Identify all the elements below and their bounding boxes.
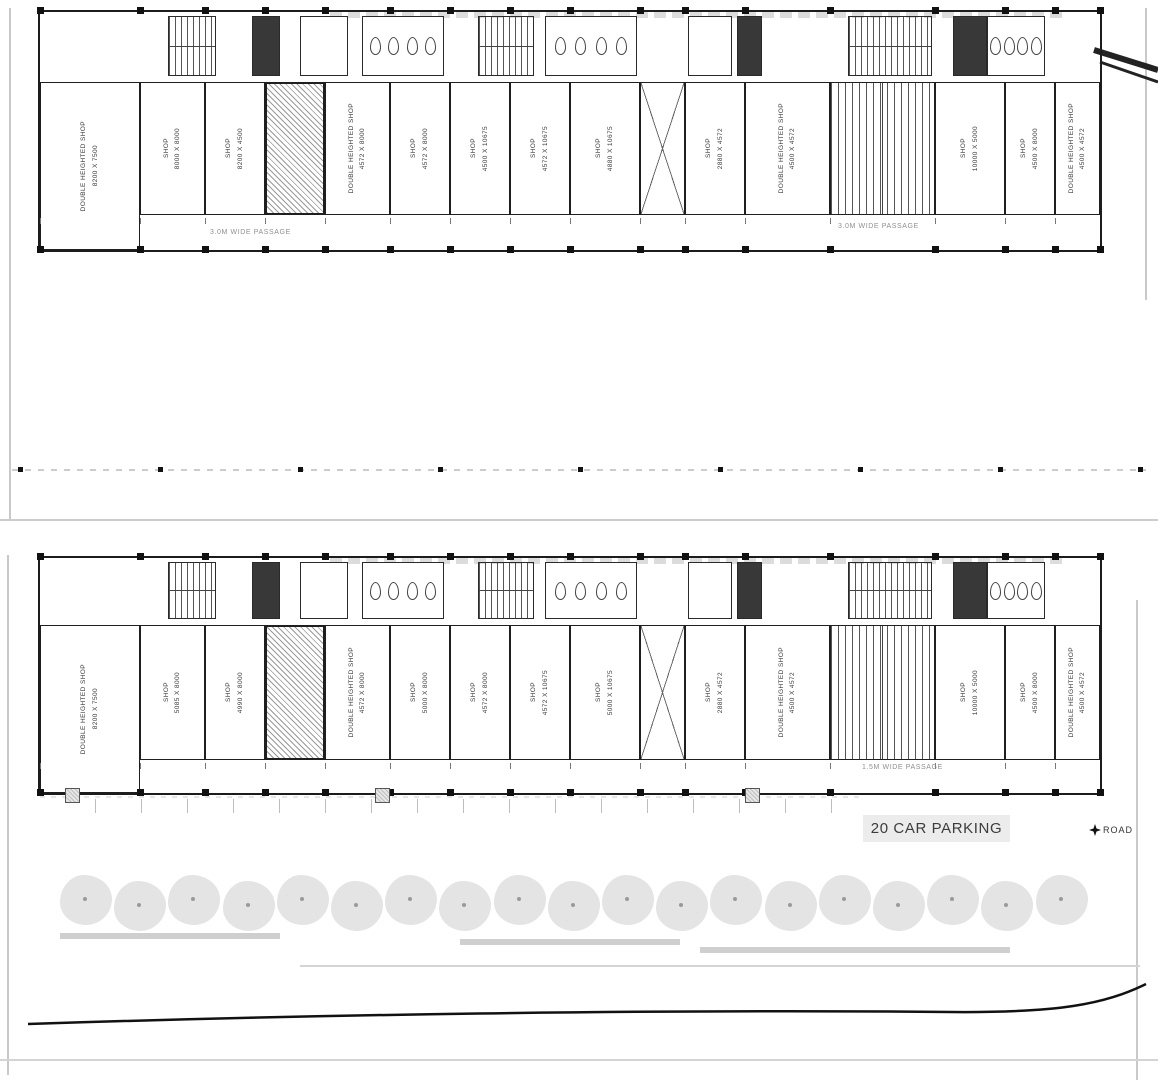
shop-label: SHOP xyxy=(225,682,233,702)
dimension-tick xyxy=(640,763,641,769)
shop-dimension: 4990 X 8000 xyxy=(237,672,245,713)
column-marker xyxy=(447,553,454,560)
lift-icon xyxy=(265,82,325,215)
dimension-tick xyxy=(685,763,686,769)
shop-label: SHOP xyxy=(470,682,478,702)
dimension-tick xyxy=(640,218,641,224)
shop-unit: DOUBLE HEIGHTED SHOP4500 X 4572 xyxy=(1055,625,1100,760)
column-marker xyxy=(682,789,689,796)
shop-dimension: 4572 X 8000 xyxy=(359,128,367,169)
wc-fixture-icon xyxy=(1031,37,1042,55)
shop-unit: DOUBLE HEIGHTED SHOP4572 X 8000 xyxy=(325,82,390,215)
column-marker xyxy=(322,7,329,14)
column-marker xyxy=(375,788,390,803)
column-marker xyxy=(1052,246,1059,253)
wc-fixture-icon xyxy=(555,37,566,55)
shop-dimension: 8000 X 8000 xyxy=(174,128,182,169)
wc-fixture-icon xyxy=(575,37,586,55)
shop-label: DOUBLE HEIGHTED SHOP xyxy=(1068,103,1076,193)
column-marker xyxy=(932,789,939,796)
dimension-tick xyxy=(205,763,206,769)
wc-fixture-icon xyxy=(407,37,418,55)
dimension-tick xyxy=(570,218,571,224)
shop-unit: DOUBLE HEIGHTED SHOP4500 X 4572 xyxy=(745,82,830,215)
dimension-tick xyxy=(40,218,41,224)
dimension-tick xyxy=(570,763,571,769)
column-marker xyxy=(37,789,44,796)
shop-dimension: 2880 X 4572 xyxy=(717,128,725,169)
wc-fixture-icon xyxy=(990,582,1001,600)
shop-dimension: 8200 X 4500 xyxy=(237,128,245,169)
shop-dimension: 5085 X 8000 xyxy=(174,672,182,713)
dimension-tick xyxy=(325,218,326,224)
wc-fixture-icon xyxy=(616,582,627,600)
shop-label: SHOP xyxy=(163,138,171,158)
parking-bay-line xyxy=(463,799,464,813)
building-wall xyxy=(1100,10,1102,250)
column-marker xyxy=(1052,553,1059,560)
shop-unit: SHOP2880 X 4572 xyxy=(685,625,745,760)
shop-dimension: 4500 X 4572 xyxy=(1079,672,1087,713)
column-marker xyxy=(682,553,689,560)
column-marker xyxy=(1138,467,1143,472)
wc-fixture-icon xyxy=(990,37,1001,55)
column-marker xyxy=(567,553,574,560)
shop-dimension: 8200 X 7500 xyxy=(92,688,100,729)
dimension-tick xyxy=(390,763,391,769)
shop-unit: SHOP2880 X 4572 xyxy=(685,82,745,215)
lift-icon xyxy=(265,625,325,760)
stair-icon xyxy=(168,562,216,619)
column-marker xyxy=(202,7,209,14)
road-curve xyxy=(28,984,1146,1024)
column-marker xyxy=(387,7,394,14)
shop-label: SHOP xyxy=(470,138,478,158)
tree-icon xyxy=(1036,875,1088,925)
dimension-tick xyxy=(140,763,141,769)
parking-bay-line xyxy=(233,799,234,813)
shop-label: DOUBLE HEIGHTED SHOP xyxy=(348,647,356,737)
column-marker xyxy=(998,467,1003,472)
wc-fixture-icon xyxy=(388,37,399,55)
wc-fixture-icon xyxy=(1031,582,1042,600)
shop-unit: SHOP8200 X 4500 xyxy=(205,82,265,215)
parking-bay-line xyxy=(141,799,142,813)
shop-label: SHOP xyxy=(960,682,968,702)
column-marker xyxy=(682,7,689,14)
shop-dimension: 4572 X 8000 xyxy=(359,672,367,713)
column-marker xyxy=(827,553,834,560)
shop-unit: SHOP4572 X 8000 xyxy=(390,82,450,215)
column-marker xyxy=(262,7,269,14)
column-marker xyxy=(158,467,163,472)
shop-unit: SHOP5000 X 8000 xyxy=(390,625,450,760)
shop-dimension: 4500 X 8000 xyxy=(1032,128,1040,169)
column-marker xyxy=(137,789,144,796)
column-marker xyxy=(827,246,834,253)
service-room xyxy=(300,562,348,619)
column-marker xyxy=(507,789,514,796)
wc-fixture-icon xyxy=(370,582,381,600)
passage-label: 3.0M WIDE PASSAGE xyxy=(838,223,919,230)
shop-label: SHOP xyxy=(530,682,538,702)
column-marker xyxy=(202,789,209,796)
column-marker xyxy=(65,788,80,803)
shop-label: SHOP xyxy=(163,682,171,702)
stair-icon xyxy=(830,82,935,215)
shop-label: SHOP xyxy=(410,682,418,702)
column-marker xyxy=(447,7,454,14)
shop-label: SHOP xyxy=(960,138,968,158)
wc-fixture-icon xyxy=(425,582,436,600)
shop-unit: SHOP4572 X 10675 xyxy=(510,625,570,760)
column-marker xyxy=(322,553,329,560)
wc-fixture-icon xyxy=(370,37,381,55)
shop-label: SHOP xyxy=(225,138,233,158)
column-marker xyxy=(262,553,269,560)
duct-shaft xyxy=(252,562,280,619)
entry-door-icon xyxy=(640,82,685,215)
column-marker xyxy=(682,246,689,253)
shop-unit: DOUBLE HEIGHTED SHOP8200 X 7500 xyxy=(40,82,140,250)
toilet-block xyxy=(362,16,444,76)
shop-dimension: 4500 X 4572 xyxy=(789,128,797,169)
column-marker xyxy=(932,7,939,14)
column-marker xyxy=(447,246,454,253)
parking-bay-line xyxy=(739,799,740,813)
column-marker xyxy=(1097,246,1104,253)
shop-label: SHOP xyxy=(595,682,603,702)
column-marker xyxy=(567,246,574,253)
tree-icon xyxy=(873,881,925,931)
stair-icon xyxy=(830,625,935,760)
dimension-tick xyxy=(450,218,451,224)
shop-label: SHOP xyxy=(705,682,713,702)
shop-dimension: 4500 X 8000 xyxy=(1032,672,1040,713)
dimension-tick xyxy=(685,218,686,224)
dimension-tick xyxy=(1055,218,1056,224)
column-marker xyxy=(262,789,269,796)
column-marker xyxy=(567,789,574,796)
column-marker xyxy=(745,788,760,803)
shop-unit: DOUBLE HEIGHTED SHOP4572 X 8000 xyxy=(325,625,390,760)
toilet-block xyxy=(987,562,1045,619)
column-marker xyxy=(1002,789,1009,796)
column-marker xyxy=(262,246,269,253)
shop-dimension: 4572 X 8000 xyxy=(482,672,490,713)
column-marker xyxy=(637,7,644,14)
wc-fixture-icon xyxy=(388,582,399,600)
dimension-tick xyxy=(745,763,746,769)
shop-dimension: 2880 X 4572 xyxy=(717,672,725,713)
parking-bay-line xyxy=(509,799,510,813)
shop-label: SHOP xyxy=(1020,138,1028,158)
column-marker xyxy=(1002,7,1009,14)
column-marker xyxy=(37,7,44,14)
dimension-tick xyxy=(140,218,141,224)
shop-label: DOUBLE HEIGHTED SHOP xyxy=(80,664,88,754)
tree-icon xyxy=(765,881,817,931)
shop-unit: SHOP4500 X 10675 xyxy=(450,82,510,215)
shop-unit: DOUBLE HEIGHTED SHOP8200 X 7500 xyxy=(40,625,140,793)
duct-shaft xyxy=(737,562,762,619)
tree-icon xyxy=(819,875,871,925)
shop-label: SHOP xyxy=(530,138,538,158)
parking-label: 20 CAR PARKING xyxy=(863,815,1010,842)
column-marker xyxy=(932,553,939,560)
column-marker xyxy=(1097,789,1104,796)
wc-fixture-icon xyxy=(425,37,436,55)
shop-unit: DOUBLE HEIGHTED SHOP4500 X 4572 xyxy=(1055,82,1100,215)
dimension-tick xyxy=(325,763,326,769)
parking-bay-line xyxy=(647,799,648,813)
stair-icon xyxy=(848,16,932,76)
shop-unit: SHOP4880 X 10675 xyxy=(570,82,640,215)
parking-bay-line xyxy=(693,799,694,813)
road-arrow-icon xyxy=(1089,824,1101,836)
wc-fixture-icon xyxy=(1004,582,1015,600)
column-marker xyxy=(742,246,749,253)
parking-bay-line xyxy=(831,799,832,813)
shop-dimension: 10000 X 5000 xyxy=(972,126,980,171)
shop-unit: SHOP4500 X 8000 xyxy=(1005,625,1055,760)
shop-dimension: 5000 X 10675 xyxy=(607,670,615,715)
shop-dimension: 4880 X 10675 xyxy=(607,126,615,171)
dimension-tick xyxy=(830,218,831,224)
shop-dimension: 5000 X 8000 xyxy=(422,672,430,713)
parking-bay-line xyxy=(325,799,326,813)
passage-label: 3.0M WIDE PASSAGE xyxy=(210,229,291,236)
column-marker xyxy=(637,553,644,560)
toilet-block xyxy=(362,562,444,619)
shop-dimension: 4500 X 10675 xyxy=(482,126,490,171)
shop-dimension: 10000 X 5000 xyxy=(972,670,980,715)
column-marker xyxy=(387,246,394,253)
stair-icon xyxy=(848,562,932,619)
shop-label: SHOP xyxy=(1020,682,1028,702)
wc-fixture-icon xyxy=(407,582,418,600)
road-label: ROAD xyxy=(1089,824,1133,836)
wc-fixture-icon xyxy=(1017,582,1028,600)
dimension-tick xyxy=(265,218,266,224)
column-marker xyxy=(37,246,44,253)
dimension-tick xyxy=(1055,763,1056,769)
toilet-block xyxy=(987,16,1045,76)
shop-label: DOUBLE HEIGHTED SHOP xyxy=(348,103,356,193)
shop-label: SHOP xyxy=(410,138,418,158)
column-marker xyxy=(137,553,144,560)
road-label-text: ROAD xyxy=(1103,825,1133,835)
dimension-tick xyxy=(1005,218,1006,224)
toilet-block xyxy=(545,562,637,619)
column-marker xyxy=(322,246,329,253)
wc-fixture-icon xyxy=(575,582,586,600)
passage-label: 1.5M WIDE PASSAGE xyxy=(862,764,943,771)
duct-shaft xyxy=(953,562,987,619)
shop-unit: SHOP5085 X 8000 xyxy=(140,625,205,760)
column-marker xyxy=(637,789,644,796)
dimension-tick xyxy=(510,218,511,224)
dimension-tick xyxy=(390,218,391,224)
wc-fixture-icon xyxy=(596,37,607,55)
shop-dimension: 4572 X 10675 xyxy=(542,126,550,171)
column-marker xyxy=(507,553,514,560)
building-wall xyxy=(1100,556,1102,793)
column-marker xyxy=(37,553,44,560)
shop-label: SHOP xyxy=(595,138,603,158)
parking-bay-line xyxy=(785,799,786,813)
road-curve xyxy=(1094,50,1158,70)
shop-dimension: 8200 X 7500 xyxy=(92,145,100,186)
column-marker xyxy=(447,789,454,796)
shop-unit: SHOP4500 X 8000 xyxy=(1005,82,1055,215)
shop-unit: SHOP10000 X 5000 xyxy=(935,625,1005,760)
column-marker xyxy=(507,7,514,14)
tree-icon xyxy=(223,881,275,931)
shop-label: SHOP xyxy=(705,138,713,158)
column-marker xyxy=(827,789,834,796)
column-marker xyxy=(322,789,329,796)
column-marker xyxy=(1002,553,1009,560)
column-marker xyxy=(578,467,583,472)
column-marker xyxy=(298,467,303,472)
shop-unit: DOUBLE HEIGHTED SHOP4500 X 4572 xyxy=(745,625,830,760)
column-marker xyxy=(137,7,144,14)
duct-shaft xyxy=(953,16,987,76)
duct-shaft xyxy=(737,16,762,76)
column-marker xyxy=(742,7,749,14)
shop-dimension: 4500 X 4572 xyxy=(1079,128,1087,169)
column-marker xyxy=(1052,789,1059,796)
service-room xyxy=(688,16,732,76)
tree-icon xyxy=(602,875,654,925)
dimension-tick xyxy=(450,763,451,769)
service-room xyxy=(300,16,348,76)
parking-bay-line xyxy=(417,799,418,813)
shop-unit: SHOP10000 X 5000 xyxy=(935,82,1005,215)
shop-dimension: 4572 X 8000 xyxy=(422,128,430,169)
service-room xyxy=(688,562,732,619)
shop-unit: SHOP4572 X 10675 xyxy=(510,82,570,215)
column-marker xyxy=(742,553,749,560)
column-marker xyxy=(718,467,723,472)
shop-label: DOUBLE HEIGHTED SHOP xyxy=(778,103,786,193)
wc-fixture-icon xyxy=(555,582,566,600)
column-marker xyxy=(438,467,443,472)
tree-icon xyxy=(494,875,546,925)
wc-fixture-icon xyxy=(1004,37,1015,55)
column-marker xyxy=(1052,7,1059,14)
dimension-tick xyxy=(265,763,266,769)
parking-bay-line xyxy=(279,799,280,813)
parking-bay-line xyxy=(95,799,96,813)
stair-icon xyxy=(168,16,216,76)
dimension-tick xyxy=(830,763,831,769)
column-marker xyxy=(202,246,209,253)
stair-icon xyxy=(478,562,534,619)
tree-icon xyxy=(548,881,600,931)
dimension-tick xyxy=(1005,763,1006,769)
shop-label: DOUBLE HEIGHTED SHOP xyxy=(778,647,786,737)
tree-icon xyxy=(331,881,383,931)
wc-fixture-icon xyxy=(596,582,607,600)
tree-icon xyxy=(277,875,329,925)
parking-bay-line xyxy=(187,799,188,813)
shop-unit: SHOP4572 X 8000 xyxy=(450,625,510,760)
column-marker xyxy=(137,246,144,253)
column-marker xyxy=(1097,553,1104,560)
duct-shaft xyxy=(252,16,280,76)
column-marker xyxy=(1002,246,1009,253)
column-marker xyxy=(1097,7,1104,14)
column-marker xyxy=(858,467,863,472)
column-marker xyxy=(507,246,514,253)
parking-bay-line xyxy=(555,799,556,813)
dimension-tick xyxy=(205,218,206,224)
shop-unit: SHOP4990 X 8000 xyxy=(205,625,265,760)
shop-label: DOUBLE HEIGHTED SHOP xyxy=(1068,647,1076,737)
dimension-tick xyxy=(40,763,41,769)
shop-label: DOUBLE HEIGHTED SHOP xyxy=(80,121,88,211)
entry-door-icon xyxy=(640,625,685,760)
shop-unit: SHOP5000 X 10675 xyxy=(570,625,640,760)
parking-label-text: 20 CAR PARKING xyxy=(871,820,1003,837)
dimension-tick xyxy=(745,218,746,224)
parking-bay-line xyxy=(601,799,602,813)
wc-fixture-icon xyxy=(1017,37,1028,55)
column-marker xyxy=(567,7,574,14)
dimension-tick xyxy=(510,763,511,769)
column-marker xyxy=(202,553,209,560)
stair-icon xyxy=(478,16,534,76)
column-marker xyxy=(387,553,394,560)
tree-icon xyxy=(60,875,112,925)
parking-bay-line xyxy=(371,799,372,813)
shop-dimension: 4500 X 4572 xyxy=(789,672,797,713)
column-marker xyxy=(932,246,939,253)
column-marker xyxy=(827,7,834,14)
column-marker xyxy=(637,246,644,253)
toilet-block xyxy=(545,16,637,76)
site-plan-canvas: 20 CAR PARKING ROAD DOUBLE HEIGHTED SHOP… xyxy=(0,0,1158,1080)
wc-fixture-icon xyxy=(616,37,627,55)
shop-dimension: 4572 X 10675 xyxy=(542,670,550,715)
shop-unit: SHOP8000 X 8000 xyxy=(140,82,205,215)
column-marker xyxy=(18,467,23,472)
dimension-tick xyxy=(935,218,936,224)
